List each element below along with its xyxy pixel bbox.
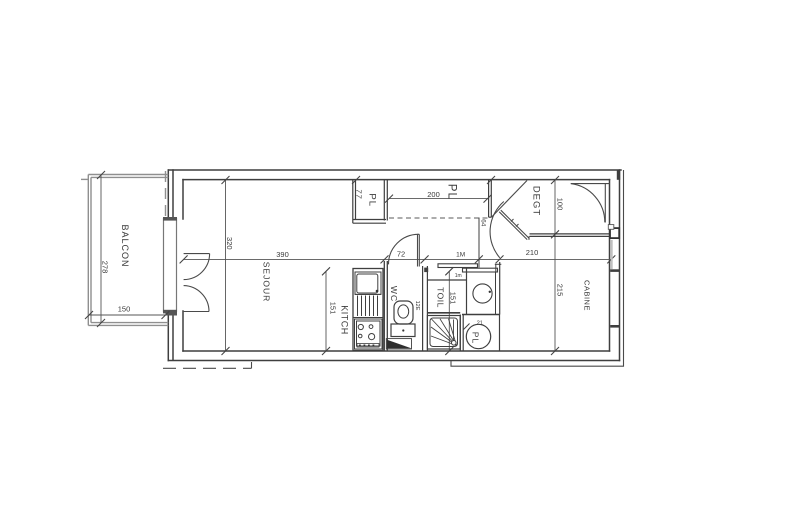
svg-text:WC: WC: [389, 286, 399, 302]
svg-text:1M: 1M: [456, 252, 465, 259]
svg-text:PL: PL: [367, 193, 378, 207]
svg-text:BALCON: BALCON: [120, 224, 130, 267]
svg-text:210: 210: [526, 248, 539, 257]
svg-text:390: 390: [276, 250, 289, 259]
svg-text:77: 77: [355, 189, 364, 199]
svg-text:CABINE: CABINE: [583, 280, 592, 311]
svg-text:151: 151: [449, 292, 458, 305]
svg-text:72: 72: [397, 250, 405, 259]
svg-text:100: 100: [556, 198, 565, 211]
svg-text:21: 21: [477, 321, 483, 327]
svg-text:278: 278: [101, 261, 110, 274]
svg-text:150: 150: [118, 305, 131, 314]
svg-text:12E: 12E: [414, 301, 420, 311]
svg-text:64: 64: [480, 219, 487, 227]
svg-text:KITCH: KITCH: [340, 305, 350, 335]
svg-text:SEJOUR: SEJOUR: [262, 262, 272, 302]
svg-text:TOIL: TOIL: [436, 287, 446, 308]
svg-text:1m: 1m: [455, 273, 462, 279]
svg-text:200: 200: [427, 190, 440, 199]
svg-text:PL: PL: [446, 184, 458, 200]
svg-text:320: 320: [225, 237, 234, 250]
svg-text:PL: PL: [471, 332, 481, 344]
svg-text:151: 151: [329, 302, 338, 315]
svg-text:215: 215: [556, 284, 565, 297]
svg-text:DEGT: DEGT: [531, 186, 542, 216]
